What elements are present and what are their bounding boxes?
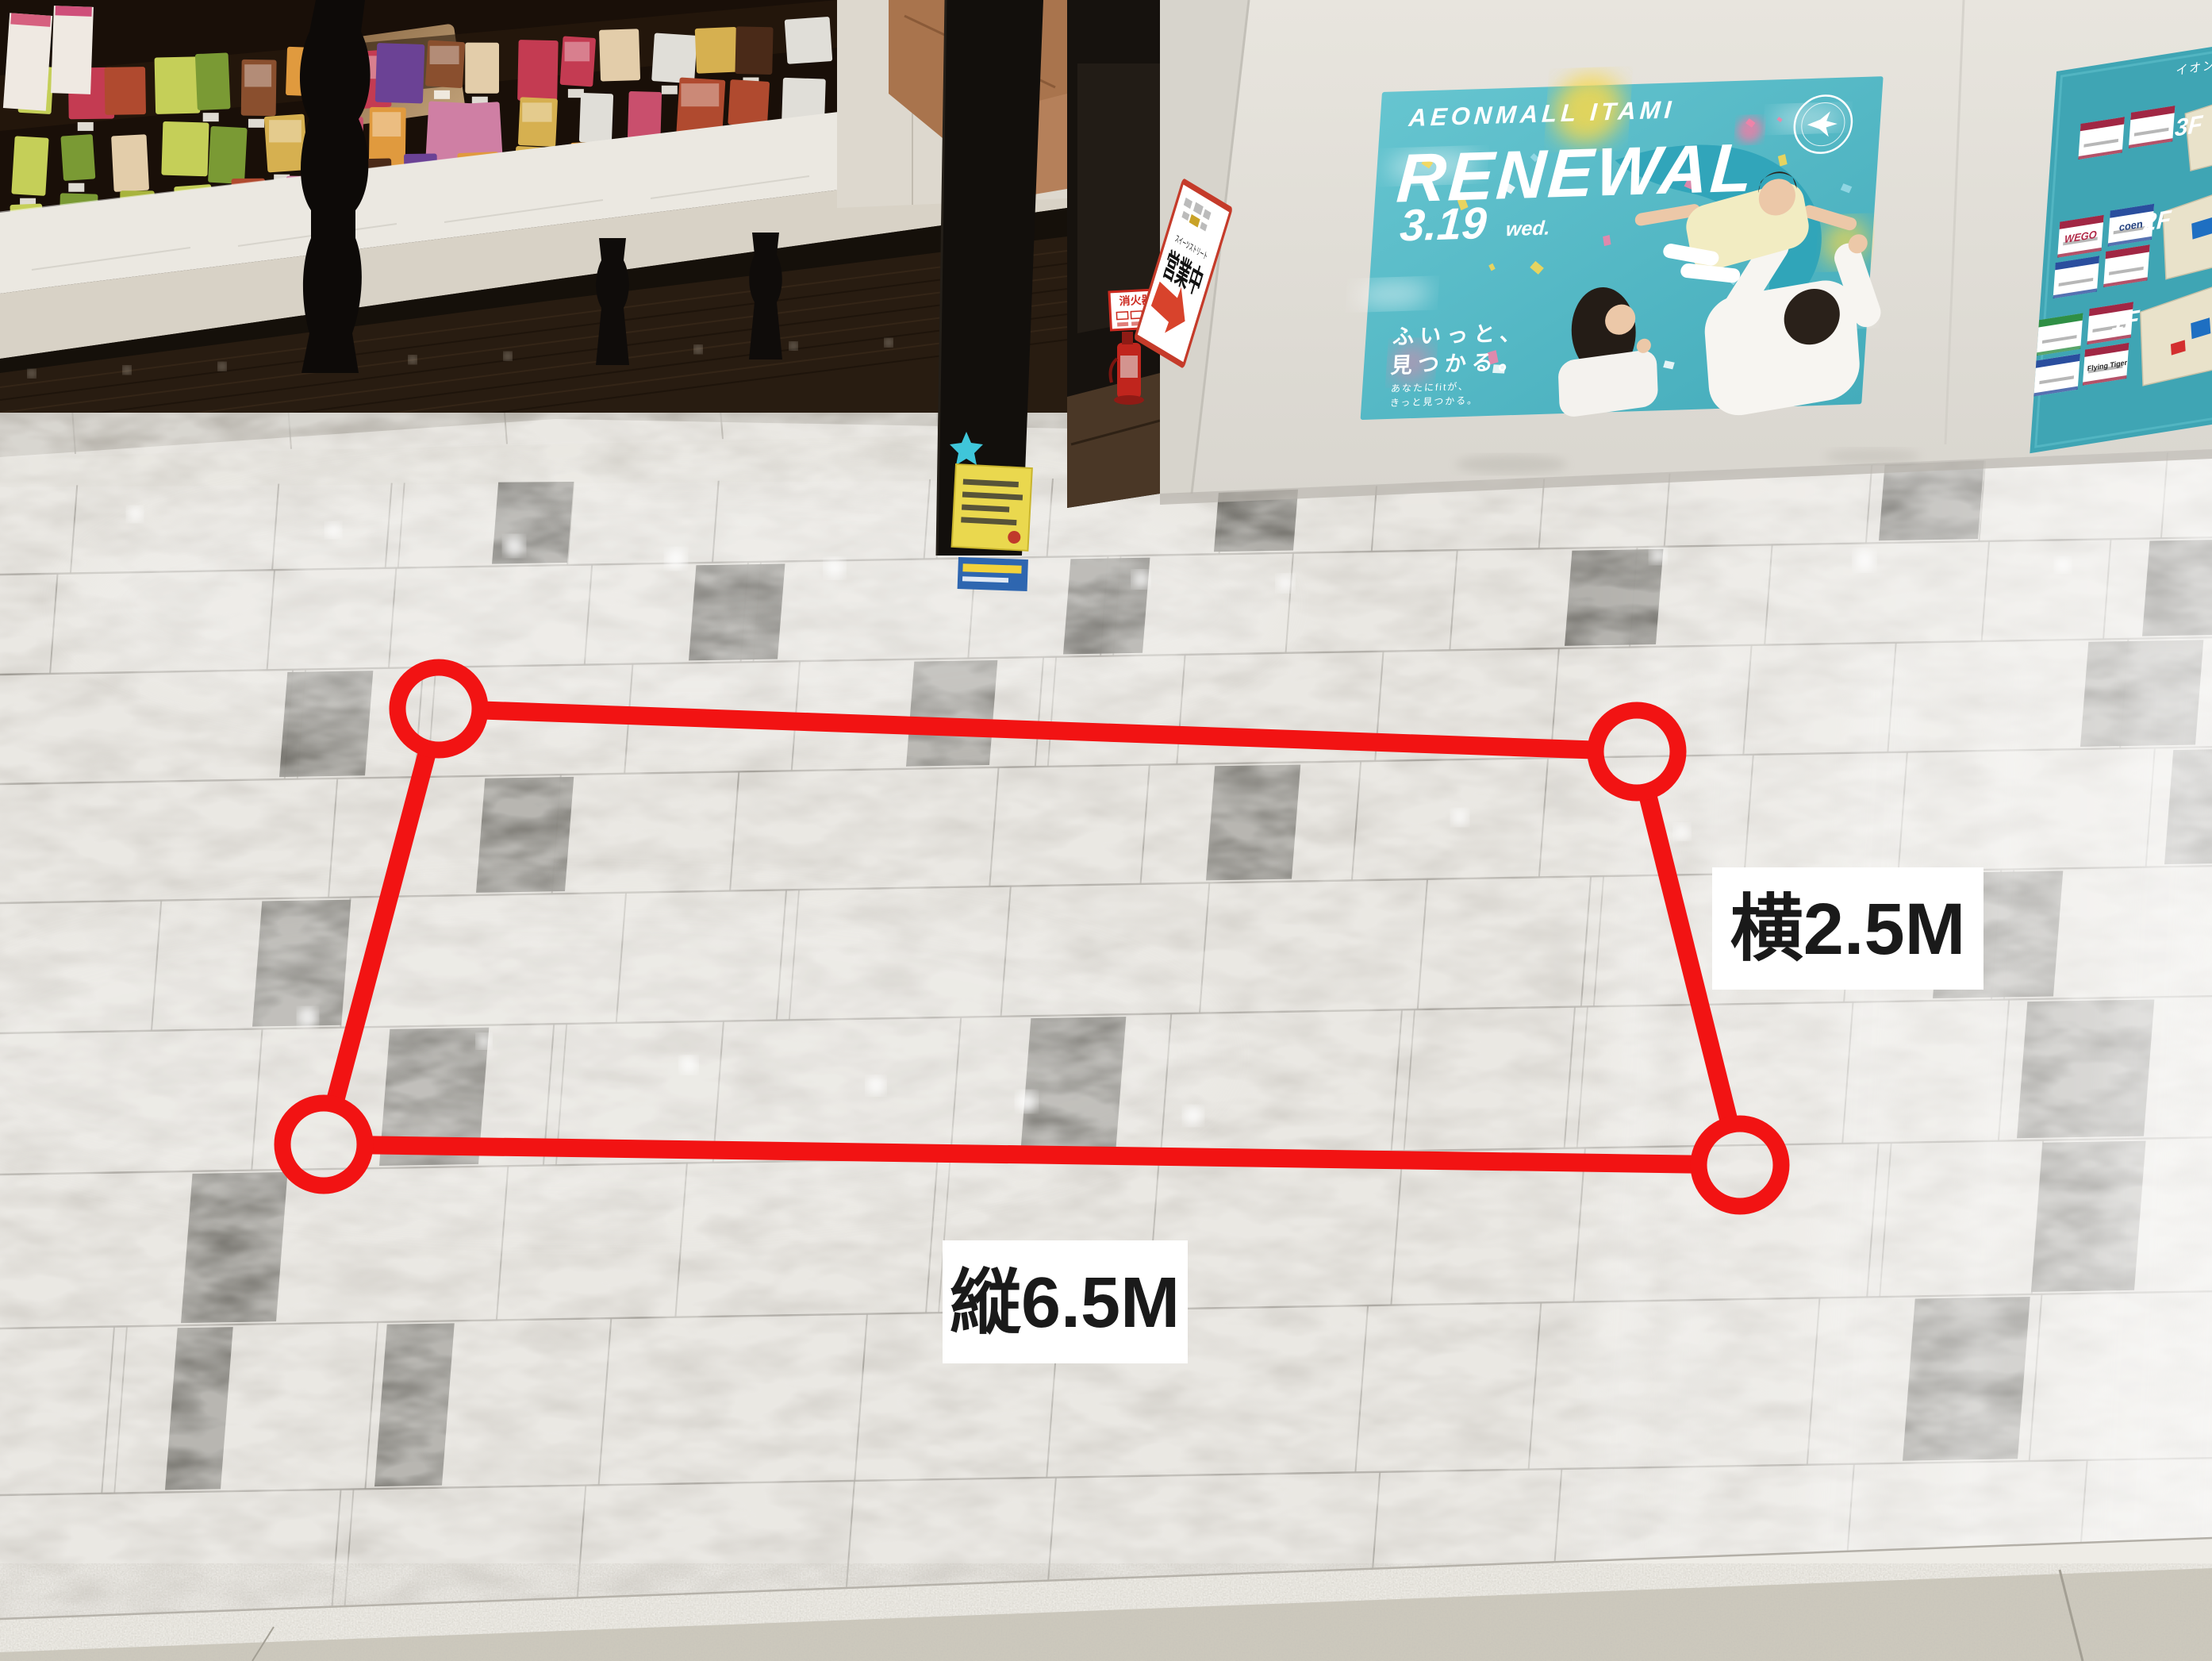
ceiling-light-reflection — [504, 536, 524, 556]
ceiling-light-reflection — [866, 1076, 885, 1094]
ceiling-light-reflection — [680, 1056, 697, 1073]
product-box-mid — [728, 79, 770, 127]
product-box-back — [785, 17, 833, 64]
wood-floor-light — [123, 366, 131, 374]
ceiling-light-reflection — [1452, 809, 1469, 826]
product-box-mid — [466, 102, 503, 159]
ceiling-light-reflection — [666, 548, 685, 568]
product-box-back — [735, 26, 773, 75]
floor-map-poster: イオンモール伊丹 3F 2F 1F WEGO coen Flying Tiger — [2030, 34, 2212, 453]
depth-label-text: 縦6.5M — [950, 1263, 1180, 1343]
wood-floor-light — [885, 339, 893, 347]
renewal-poster: AEONMALL ITAMI RENEWAL 3.19 wed. ふいっと、 見… — [1346, 64, 1902, 432]
product-box-back — [105, 67, 147, 115]
wall-smudge — [1825, 448, 1920, 464]
box-label-patch — [269, 120, 301, 142]
doorway-wood-floor — [1067, 373, 1160, 508]
renewal-sub-1: あなたにfitが、 — [1391, 380, 1470, 394]
price-tag — [434, 90, 450, 99]
box-label-patch — [430, 46, 459, 64]
price-tag — [203, 113, 219, 121]
box-label-patch — [372, 112, 401, 136]
wood-floor-light — [28, 370, 36, 378]
ceiling-light-reflection — [1016, 1091, 1036, 1111]
fire-extinguisher-base — [1114, 395, 1144, 405]
product-box-mid — [208, 126, 248, 184]
product-box-back — [695, 27, 739, 74]
price-tag — [68, 183, 84, 192]
fire-sign-pictogram — [1117, 322, 1128, 327]
fire-extinguisher-head — [1122, 332, 1133, 344]
price-tag — [78, 122, 94, 131]
blue-tag — [958, 557, 1028, 591]
width-label-box: 横2.5M — [1712, 867, 1984, 990]
product-box-back — [651, 33, 697, 83]
ceiling-light-reflection — [1132, 571, 1149, 587]
product-box-back — [599, 29, 640, 81]
product-box-mid — [111, 134, 149, 192]
renewal-day: wed. — [1505, 217, 1550, 240]
product-box-back — [155, 56, 201, 114]
photo-canvas: 消火器 AEONMALL ITAMI RENEWAL 3.19 wed. ふいっ… — [0, 0, 2212, 1661]
tile-floor — [0, 349, 2212, 1661]
ceiling-light-reflection — [128, 507, 142, 521]
pillar-notice-group — [952, 464, 1032, 551]
ceiling-light-reflection — [298, 1008, 317, 1027]
floor-label-1f: 1F — [2110, 305, 2141, 336]
wood-floor-light — [504, 352, 512, 360]
depth-label-box: 縦6.5M — [943, 1240, 1188, 1363]
sweets-shop-counter — [0, 0, 1067, 476]
price-tag — [662, 86, 678, 94]
confetti — [1603, 235, 1611, 246]
menu-board-header — [56, 6, 92, 17]
price-tag — [248, 119, 264, 128]
width-label-text: 横2.5M — [1730, 889, 1966, 970]
wood-floor-light — [409, 356, 417, 363]
floor-label-2f: 2F — [2142, 205, 2173, 236]
mall-atrium-photo: 消火器 AEONMALL ITAMI RENEWAL 3.19 wed. ふいっ… — [0, 0, 2212, 1661]
wood-floor-light — [218, 363, 226, 371]
renewal-catch-1: ふいっと、 — [1392, 321, 1527, 348]
pillar-tag-group — [958, 557, 1028, 591]
floor-map-art — [2030, 34, 2212, 453]
ceiling-light-reflection — [1277, 575, 1294, 592]
service-doorway — [1067, 0, 1160, 508]
fire-extinguisher-label — [1120, 356, 1138, 378]
box-label-patch — [522, 102, 551, 121]
product-box-back — [195, 52, 231, 110]
ceiling-light-reflection — [477, 1034, 491, 1048]
renewal-date: 3.19 — [1399, 198, 1488, 250]
product-box-mid — [60, 134, 95, 181]
floor-label-3f: 3F — [2174, 110, 2204, 142]
renewal-catch-2: 見つかる。 — [1390, 350, 1527, 378]
menu-board — [51, 6, 94, 94]
product-box-back — [465, 43, 499, 94]
ceiling-light-reflection — [1184, 1106, 1203, 1125]
menu-board — [3, 13, 52, 110]
box-label-patch — [244, 64, 271, 87]
product-box-mid — [11, 136, 48, 196]
wood-floor-light — [789, 342, 797, 350]
ceiling-light-reflection — [825, 559, 845, 579]
product-box-mid — [161, 121, 209, 176]
wall-smudge — [1456, 455, 1567, 474]
light-patch — [71, 468, 1277, 738]
product-box-back — [375, 43, 425, 103]
product-box-back — [517, 40, 559, 102]
window-reflections — [1507, 429, 2212, 1635]
wood-floor-light — [694, 345, 702, 353]
ceiling-light-reflection — [326, 523, 341, 538]
box-label-patch — [681, 83, 719, 106]
product-box-mid — [579, 93, 613, 144]
box-label-patch — [565, 42, 590, 62]
